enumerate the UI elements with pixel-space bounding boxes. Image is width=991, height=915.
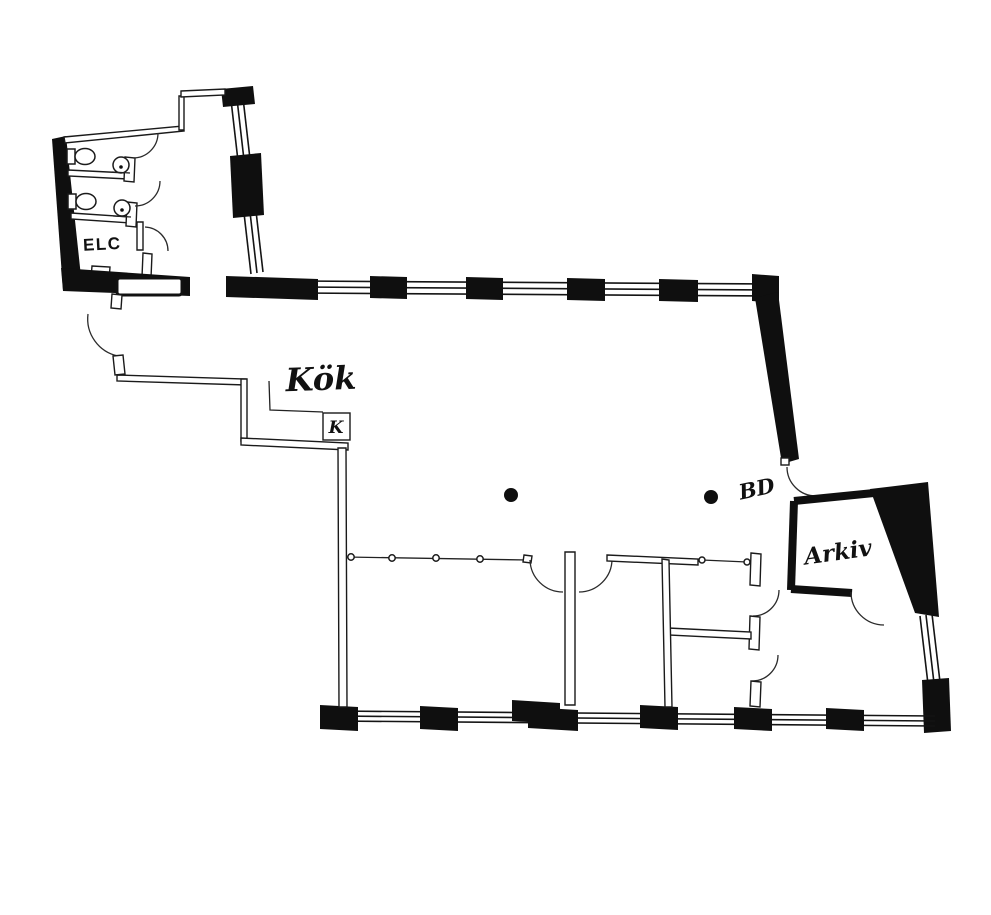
room-divider-wall <box>668 628 751 639</box>
room-west-wall <box>662 559 672 707</box>
columns <box>504 488 718 504</box>
door-arc <box>851 592 884 625</box>
floor-plan-page: ELC Kök K BD Arkiv <box>0 0 991 915</box>
central-dividing-wall <box>565 552 575 705</box>
window-pier <box>567 278 605 301</box>
toilet-bowl <box>76 194 96 210</box>
sink-bowl <box>113 157 129 173</box>
window-band-north <box>226 274 779 303</box>
room-label-elc: ELC <box>83 234 122 255</box>
window-pier <box>528 707 578 731</box>
door-arc <box>88 314 118 356</box>
elc-room <box>61 222 190 356</box>
door-arc <box>752 655 778 681</box>
sink-icon <box>112 157 130 173</box>
partition-post <box>389 555 395 561</box>
window-pier <box>221 86 255 107</box>
window-pier <box>466 277 503 300</box>
window-pier <box>230 153 264 218</box>
window-pier <box>640 705 678 730</box>
column-marker <box>704 490 718 504</box>
room-label-kitchen: Kök <box>284 359 357 399</box>
partition-post <box>433 555 439 561</box>
window-pier <box>659 279 698 302</box>
toilet-icon <box>68 194 96 210</box>
toilet-tank <box>67 149 75 164</box>
window-pier <box>320 705 358 731</box>
corner-pier <box>922 678 951 733</box>
partition-post <box>348 554 354 560</box>
window-pier <box>826 708 864 731</box>
door-arc <box>579 559 612 592</box>
room-north-wall <box>607 555 698 565</box>
toilet-bowl <box>75 149 95 165</box>
annex-north-wall-step <box>179 96 184 130</box>
window-band-south <box>320 700 935 731</box>
window-pier <box>370 276 407 299</box>
partition-post <box>744 559 750 565</box>
door-arc <box>530 560 563 592</box>
floor-plan-drawing: ELC Kök K BD Arkiv <box>0 0 991 915</box>
door-jamb <box>750 681 761 707</box>
kitchen-east-wall <box>241 379 247 441</box>
wall-end-cap <box>781 458 789 465</box>
door-arc <box>135 181 160 206</box>
arkiv-west-wall <box>791 501 794 590</box>
main-hall-west-wall <box>338 448 347 707</box>
fridge-label: K <box>328 418 345 438</box>
arkiv-south-wall <box>791 589 852 593</box>
door-jamb <box>750 553 761 586</box>
annex-north-wall-top <box>181 89 225 97</box>
door-arc <box>145 227 168 251</box>
room-label-bd: BD <box>736 472 778 504</box>
window-band-northwest <box>221 86 264 274</box>
toilet-icon <box>67 149 95 165</box>
door-jamb <box>111 294 122 309</box>
door-arc <box>133 133 158 158</box>
elc-east-wall <box>137 222 143 250</box>
room-label-archive: Arkiv <box>801 534 875 571</box>
window-pier <box>226 276 318 300</box>
sink-bowl <box>114 200 130 216</box>
partition-line <box>702 560 747 562</box>
sink-drain <box>119 165 123 169</box>
door-arc <box>787 467 816 496</box>
window-pier <box>734 707 772 731</box>
column-marker <box>504 488 518 502</box>
door-arc <box>753 590 779 616</box>
inner-rooms <box>530 552 779 707</box>
sink-drain <box>120 208 124 212</box>
partition-post <box>477 556 483 562</box>
partition-post <box>699 557 705 563</box>
glass-partition <box>346 554 532 563</box>
kitchen-north-wall <box>117 375 246 385</box>
toilet-tank <box>68 194 76 209</box>
wc-area <box>67 133 160 227</box>
east-upper-thick-wall <box>755 292 799 464</box>
east-lower-thick-wall <box>870 482 939 617</box>
door-jamb <box>113 355 125 375</box>
window-pier <box>420 706 458 731</box>
annex-north-wall <box>64 126 184 143</box>
cased-opening <box>117 278 182 295</box>
